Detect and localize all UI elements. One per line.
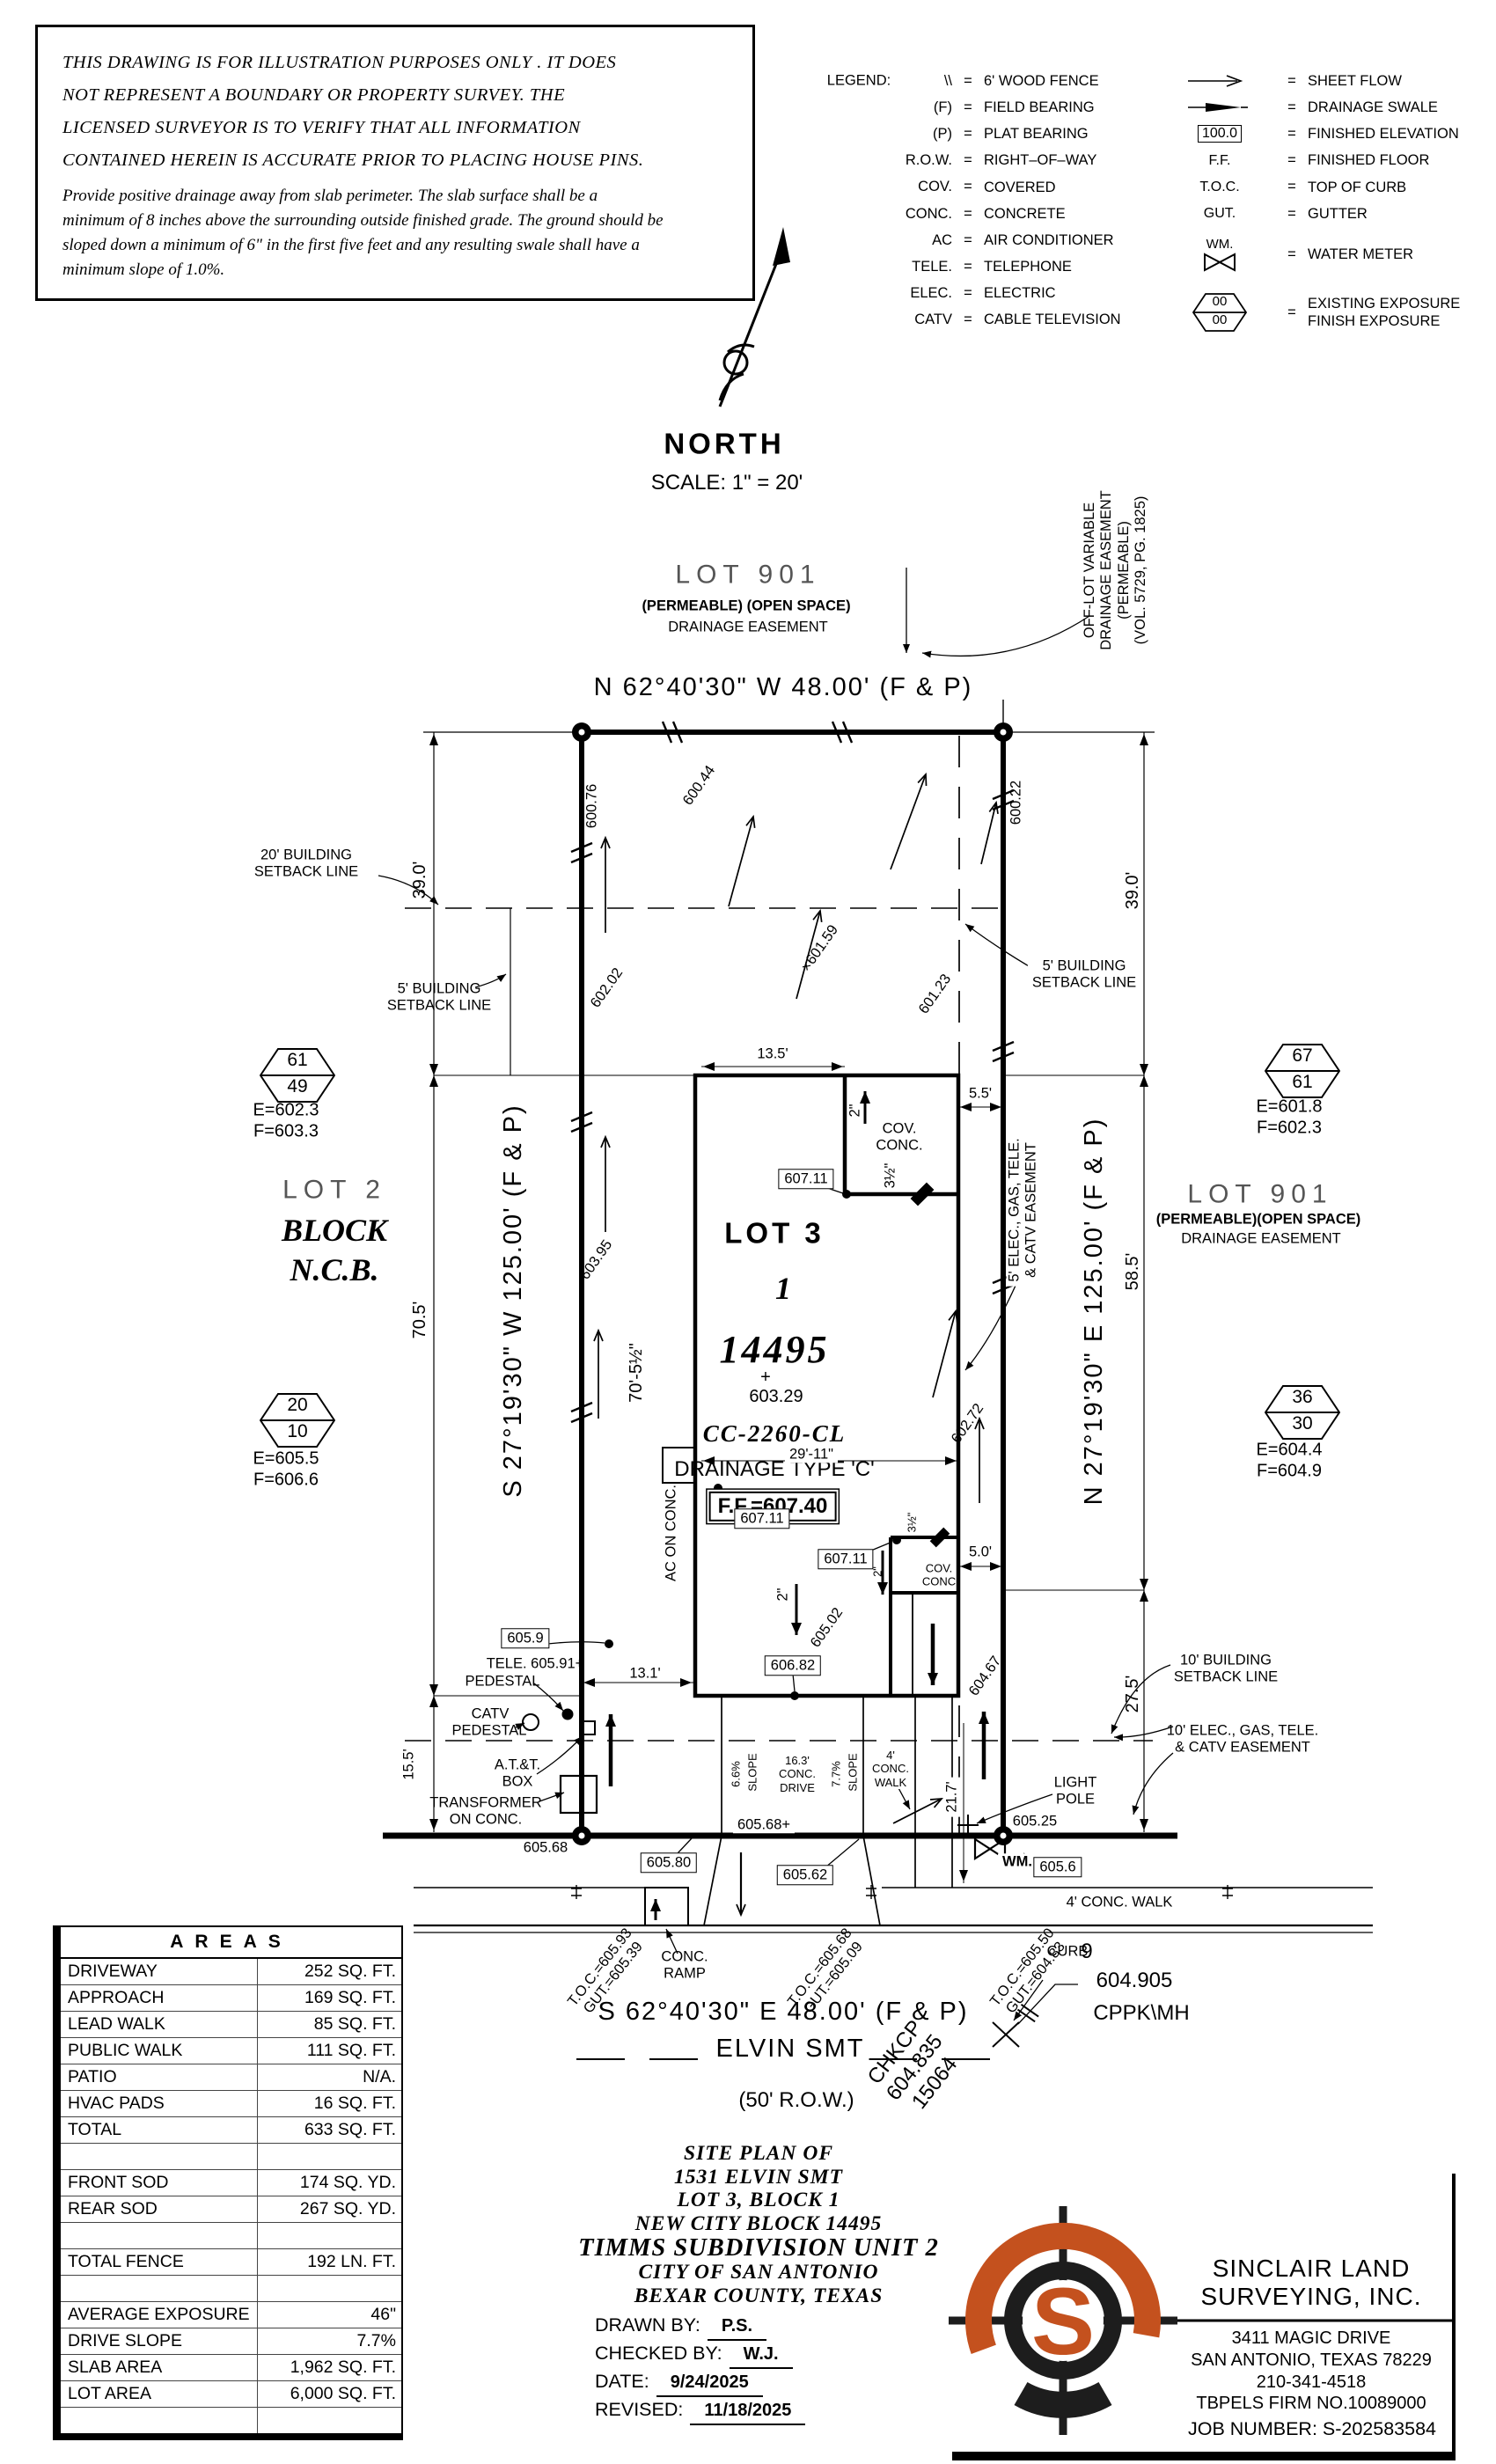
areas-row-value: N/A. — [258, 2064, 401, 2090]
label-13-1: 13.1' — [625, 1665, 664, 1682]
areas-row-value — [258, 2408, 401, 2433]
areas-row: DRIVE SLOPE7.7% — [61, 2328, 401, 2354]
label-ac-on-conc: AC ON CONC. — [663, 1485, 679, 1581]
label-block: BLOCK — [282, 1212, 387, 1249]
legend-label: TELEPHONE — [984, 258, 1072, 276]
legend-item: CATV=CABLE TELEVISION — [887, 307, 1121, 334]
areas-row-value: 633 SQ. FT. — [258, 2117, 401, 2143]
legend-item: (P)=PLAT BEARING — [887, 121, 1121, 147]
areas-row-label: TOTAL FENCE — [61, 2249, 258, 2275]
legend-label: COVERED — [984, 179, 1056, 197]
label-607-11: 607.11 — [734, 1508, 789, 1529]
areas-row-label: AVERAGE EXPOSURE — [61, 2302, 258, 2328]
label-cc-2260-cl: CC-2260-CL — [703, 1420, 847, 1448]
label-5-5: 5.5' — [964, 1085, 996, 1102]
label-lot-901: LOT 901 — [1187, 1178, 1332, 1209]
legend-item: GUT.=GUTTER — [1163, 201, 1460, 227]
areas-row-label: TOTAL — [61, 2117, 258, 2143]
legend-item: CONC.=CONCRETE — [887, 201, 1121, 227]
legend-item: TELE.=TELEPHONE — [887, 253, 1121, 280]
legend-symbol: R.O.W. — [887, 152, 952, 169]
hex-top-value: 61 — [260, 1050, 335, 1071]
tele-pedestal-symbol — [562, 1709, 573, 1720]
label-n-c-b: N.C.B. — [290, 1251, 378, 1288]
label-14495: 14495 — [720, 1327, 830, 1373]
legend-equals: = — [1276, 152, 1308, 169]
label-39-0: 39.0' — [1123, 872, 1144, 910]
legend-item: 100.0=FINISHED ELEVATION — [1163, 121, 1460, 147]
legend-item: \\=6' WOOD FENCE — [887, 68, 1121, 94]
label-s-27-19-30-w-125-00-f-p: S 27°19'30" W 125.00' (F & P) — [498, 1104, 528, 1497]
areas-row-value: 267 SQ. YD. — [258, 2196, 401, 2222]
areas-row-value: 46" — [258, 2302, 401, 2328]
areas-table-title: AREAS — [61, 1927, 401, 1959]
areas-row-value: 1,962 SQ. FT. — [258, 2355, 401, 2380]
spot-dot — [605, 1640, 613, 1648]
label-13-5: 13.5' — [757, 1045, 788, 1062]
label-29-11: 29'-11" — [785, 1446, 838, 1463]
firm-name-line2: SURVEYING, INC. — [1179, 2283, 1443, 2311]
disclaimer-line: Provide positive drainage away from slab… — [62, 184, 728, 209]
legend-equals: = — [952, 259, 984, 275]
sheet-flow-icon — [1186, 74, 1253, 88]
areas-row-label: DRIVEWAY — [61, 1959, 258, 1984]
areas-row-value — [258, 2276, 401, 2301]
label-7-7: 7.7% — [829, 1761, 842, 1787]
areas-row: LEAD WALK85 SQ. FT. — [61, 2011, 401, 2037]
svg-text:S: S — [1031, 2268, 1095, 2374]
areas-row: AVERAGE EXPOSURE46" — [61, 2301, 401, 2328]
label-39-0: 39.0' — [410, 862, 431, 899]
label-58-5: 58.5' — [1123, 1253, 1144, 1291]
legend-item: T.O.C.=TOP OF CURB — [1163, 174, 1460, 201]
legend-label: WATER METER — [1308, 246, 1413, 264]
legend-label: SHEET FLOW — [1308, 72, 1402, 91]
label-605-62: 605.62 — [777, 1865, 833, 1885]
legend-equals: = — [1276, 179, 1308, 195]
legend-label: CABLE TELEVISION — [984, 311, 1121, 329]
legend-symbol: COV. — [887, 179, 952, 195]
label-slope: SLOPE — [745, 1753, 759, 1791]
exposure-hex-marker: 6149 — [260, 1048, 335, 1103]
field-value: 9/24/2025 — [656, 2370, 763, 2397]
areas-row: PUBLIC WALK111 SQ. FT. — [61, 2037, 401, 2064]
label-drainage-easement: DRAINAGE EASEMENT — [668, 619, 828, 635]
areas-row: PATION/A. — [61, 2064, 401, 2090]
legend-symbol: AC — [887, 232, 952, 249]
areas-row: HVAC PADS16 SQ. FT. — [61, 2090, 401, 2116]
disclaimer-line: NOT REPRESENT A BOUNDARY OR PROPERTY SUR… — [62, 79, 728, 112]
label-21-7: 21.7' — [943, 1777, 960, 1816]
legend-label: EXISTING EXPOSURE FINISH EXPOSURE — [1308, 295, 1460, 331]
label-on-conc: ON CONC. — [450, 1811, 523, 1828]
legend-label: AIR CONDITIONER — [984, 231, 1114, 250]
areas-row: DRIVEWAY252 SQ. FT. — [61, 1959, 401, 1984]
legend-item: WM.=WATER METER — [1163, 227, 1460, 282]
disclaimer-line: CONTAINED HEREIN IS ACCURATE PRIOR TO PL… — [62, 144, 728, 177]
label-e-601-8-f-602-3: E=601.8 F=602.3 — [1256, 1096, 1322, 1138]
legend-symbol: WM. — [1163, 237, 1276, 273]
label-2: 2" — [847, 1104, 863, 1117]
legend-label: FIELD BEARING — [984, 99, 1095, 117]
areas-row-label: DRIVE SLOPE — [61, 2328, 258, 2354]
areas-row-label — [61, 2408, 258, 2433]
areas-row-label — [61, 2144, 258, 2169]
firm-name-line1: SINCLAIR LAND — [1179, 2255, 1443, 2283]
legend-item: COV.=COVERED — [887, 174, 1121, 201]
legend-symbol: 100.0 — [1163, 125, 1276, 143]
sinclair-logo-icon: S — [949, 2204, 1177, 2437]
label-600-76: 600.76 — [583, 784, 600, 828]
transformer-symbol — [561, 1776, 597, 1813]
areas-row-value: 192 LN. FT. — [258, 2249, 401, 2275]
areas-row-label — [61, 2276, 258, 2301]
label-e-605-5-f-606-6: E=605.5 F=606.6 — [253, 1448, 319, 1490]
legend-label: FINISHED FLOOR — [1308, 151, 1429, 170]
label-3: 3½" — [905, 1513, 918, 1533]
legend-symbol: \\ — [887, 73, 952, 90]
label-9: 9 — [1081, 1940, 1092, 1964]
label-27-5: 27.5' — [1123, 1676, 1144, 1713]
label-transformer: TRANSFORMER — [429, 1794, 541, 1811]
areas-row-label: LOT AREA — [61, 2381, 258, 2407]
label-catv: CATV — [472, 1705, 510, 1722]
firm-address-line2: SAN ANTONIO, TEXAS 78229 — [1179, 2350, 1443, 2371]
legend-label: TOP OF CURB — [1308, 179, 1406, 197]
finished-elevation-box: 100.0 — [1198, 125, 1242, 143]
areas-row-label: REAR SOD — [61, 2196, 258, 2222]
label-1: 1 — [775, 1270, 791, 1307]
label-tele-605-91: TELE. 605.91+ — [487, 1655, 584, 1672]
label-5-building-setback-line: 5' BUILDING SETBACK LINE — [1028, 958, 1140, 993]
areas-row: FRONT SOD174 SQ. YD. — [61, 2169, 401, 2196]
label-606-82: 606.82 — [765, 1655, 821, 1676]
legend-symbol: 0000 — [1163, 293, 1276, 332]
label-north: NORTH — [664, 428, 784, 462]
label-drainage-type-c: DRAINAGE TYPE 'C' — [674, 1457, 874, 1482]
title-block-field: REVISED:11/18/2025 — [595, 2397, 805, 2425]
field-label: REVISED: — [595, 2399, 683, 2420]
title-block-field: DATE:9/24/2025 — [595, 2369, 805, 2397]
label-cppk-mh: CPPK\MH — [1093, 2001, 1189, 2026]
label-50-r-o-w: (50' R.O.W.) — [738, 2088, 854, 2113]
areas-row-label: LEAD WALK — [61, 2012, 258, 2037]
label-permeable-open-space: (PERMEABLE)(OPEN SPACE) — [1156, 1211, 1361, 1228]
legend-equals: = — [1276, 304, 1308, 321]
areas-table: AREAS DRIVEWAY252 SQ. FT.APPROACH169 SQ.… — [53, 1925, 403, 2440]
legend-item: =SHEET FLOW — [1163, 68, 1460, 94]
label-n-27-19-30-e-125-00-f-p: N 27°19'30" E 125.00' (F & P) — [1079, 1118, 1109, 1506]
legend-item: (F)=FIELD BEARING — [887, 94, 1121, 121]
label-n-62-40-30-w-48-00-f-p: N 62°40'30" W 48.00' (F & P) — [594, 672, 973, 702]
legend-equals: = — [1276, 73, 1308, 90]
legend-symbol: T.O.C. — [1163, 180, 1276, 195]
legend-equals: = — [952, 73, 984, 90]
areas-row-label: SLAB AREA — [61, 2355, 258, 2380]
legend-symbol: CONC. — [887, 206, 952, 223]
label-603-29: 603.29 — [749, 1387, 803, 1408]
spot-dot — [843, 1191, 851, 1199]
disclaimer-line: minimum of 8 inches above the surroundin… — [62, 209, 728, 233]
label-e-602-3-f-603-3: E=602.3 F=603.3 — [253, 1100, 319, 1141]
legend-equals: = — [952, 152, 984, 169]
label-607-11: 607.11 — [818, 1549, 873, 1569]
areas-row-label — [61, 2223, 258, 2248]
fence-marks — [571, 722, 1014, 1422]
legend-symbol: ELEC. — [887, 285, 952, 302]
legend-equals: = — [952, 206, 984, 223]
field-value: P.S. — [708, 2314, 766, 2341]
label-5-0: 5.0' — [964, 1544, 996, 1560]
disclaimer-line: sloped down a minimum of 6" in the first… — [62, 233, 728, 258]
areas-row — [61, 2143, 401, 2169]
label-off-lot-variable-drainage-easement-permeab: OFF-LOT VARIABLE DRAINAGE EASEMENT (PERM… — [1082, 490, 1150, 650]
hex-top-value: 20 — [260, 1395, 335, 1416]
legend-label: GUTTER — [1308, 205, 1368, 224]
title-block: SITE PLAN OF1531 ELVIN SMTLOT 3, BLOCK 1… — [495, 2142, 1023, 2307]
legend-equals: = — [1276, 99, 1308, 116]
label-e-604-4-f-604-9: E=604.4 F=604.9 — [1256, 1440, 1322, 1481]
firm-address-line1: 3411 MAGIC DRIVE — [1179, 2328, 1443, 2349]
areas-row: TOTAL633 SQ. FT. — [61, 2116, 401, 2143]
areas-row-value: 169 SQ. FT. — [258, 1985, 401, 2011]
legend-label: FINISHED ELEVATION — [1308, 125, 1459, 143]
legend-symbol: TELE. — [887, 259, 952, 275]
legend-label: PLAT BEARING — [984, 125, 1089, 143]
legend-equals: = — [1276, 206, 1308, 223]
areas-row — [61, 2275, 401, 2301]
label-10-building-setback-line: 10' BUILDING SETBACK LINE — [1174, 1653, 1278, 1687]
label-5-elec-gas-tele-catv-easement: 5' ELEC., GAS, TELE. & CATV EASEMENT — [1007, 1133, 1041, 1286]
areas-row: REAR SOD267 SQ. YD. — [61, 2196, 401, 2222]
label-2: 2" — [870, 1566, 884, 1577]
legend-symbol: CATV — [887, 312, 952, 328]
areas-row-label: FRONT SOD — [61, 2170, 258, 2196]
areas-row-label: APPROACH — [61, 1985, 258, 2011]
exposure-hex-marker: 2010 — [260, 1393, 335, 1448]
title-block-line: NEW CITY BLOCK 14495 — [495, 2212, 1023, 2236]
label-6-6: 6.6% — [729, 1761, 742, 1787]
firm-job-number: JOB NUMBER: S-202583584 — [1175, 2418, 1449, 2440]
disclaimer-line: LICENSED SURVEYOR IS TO VERIFY THAT ALL … — [62, 112, 728, 144]
areas-row-value: 252 SQ. FT. — [258, 1959, 401, 1984]
label-605-25: 605.25 — [1013, 1813, 1057, 1830]
areas-row-label: PATIO — [61, 2064, 258, 2090]
areas-row: LOT AREA6,000 SQ. FT. — [61, 2380, 401, 2407]
label-2: 2" — [774, 1588, 791, 1601]
areas-row-value: 7.7% — [258, 2328, 401, 2354]
legend-equals: = — [952, 232, 984, 249]
label-15-5: 15.5' — [400, 1744, 417, 1784]
areas-row-value: 16 SQ. FT. — [258, 2091, 401, 2116]
legend-symbol: GUT. — [1163, 206, 1276, 222]
areas-row: SLAB AREA1,962 SQ. FT. — [61, 2354, 401, 2380]
hex-top-value: 67 — [1265, 1045, 1340, 1067]
label-pedestal: PEDESTAL — [466, 1673, 540, 1690]
label-cov-conc: COV. CONC. — [876, 1121, 922, 1155]
areas-row-value: 85 SQ. FT. — [258, 2012, 401, 2037]
legend-item: F.F.=FINISHED FLOOR — [1163, 148, 1460, 174]
legend-label: ELECTRIC — [984, 284, 1056, 303]
label-slope: SLOPE — [846, 1753, 859, 1791]
disclaimer-line: THIS DRAWING IS FOR ILLUSTRATION PURPOSE… — [62, 47, 728, 79]
legend-item: 0000=EXISTING EXPOSURE FINISH EXPOSURE — [1163, 282, 1460, 343]
legend-equals: = — [952, 312, 984, 328]
label-605-68: 605.68 — [524, 1839, 568, 1856]
label-pedestal: PEDESTAL — [452, 1722, 527, 1739]
title-block-field: DRAWN BY:P.S. — [595, 2313, 805, 2341]
label-cov-conc: COV. CONC — [922, 1562, 956, 1589]
disclaimer-caps: THIS DRAWING IS FOR ILLUSTRATION PURPOSE… — [62, 47, 728, 177]
hex-top-value: 36 — [1265, 1387, 1340, 1408]
disclaimer-line: minimum slope of 1.0%. — [62, 258, 728, 282]
dimension-arrowheads — [429, 734, 1148, 1881]
legend-equals: = — [952, 99, 984, 116]
field-label: CHECKED BY: — [595, 2343, 722, 2364]
label-3: 3½" — [882, 1163, 898, 1189]
areas-row — [61, 2407, 401, 2433]
label-4-conc-walk: 4' CONC. WALK — [1062, 1894, 1177, 1910]
areas-row — [61, 2222, 401, 2248]
legend-label: CONCRETE — [984, 205, 1066, 224]
legend-equals: = — [952, 179, 984, 195]
areas-row-value: 111 SQ. FT. — [258, 2038, 401, 2064]
hex-bottom-value: 49 — [260, 1076, 335, 1097]
areas-row-value: 174 SQ. YD. — [258, 2170, 401, 2196]
exposure-hex-marker: 3630 — [1265, 1385, 1340, 1440]
utility-symbols — [523, 1191, 1038, 2048]
legend-item: ELEC.=ELECTRIC — [887, 281, 1121, 307]
legend-equals: = — [952, 126, 984, 143]
label-: + — [760, 1368, 771, 1389]
legend-symbol: (F) — [887, 99, 952, 116]
field-value: 11/18/2025 — [690, 2398, 805, 2425]
label-605-9: 605.9 — [501, 1628, 549, 1648]
legend-equals: = — [1276, 246, 1308, 263]
legend-label: DRAINAGE SWALE — [1308, 99, 1438, 117]
label-elvin-smt: ELVIN SMT — [712, 2034, 869, 2064]
label-20-building-setback-line: 20' BUILDING SETBACK LINE — [254, 847, 358, 882]
field-label: DRAWN BY: — [595, 2314, 700, 2336]
areas-row-label: HVAC PADS — [61, 2091, 258, 2116]
label-permeable-open-space: (PERMEABLE) (OPEN SPACE) — [642, 598, 850, 614]
conc-ramp-shape — [645, 1888, 688, 1925]
legend-label: RIGHT–OF–WAY — [984, 151, 1096, 170]
label-604-905: 604.905 — [1096, 1969, 1173, 1993]
hex-bottom-value: 30 — [1265, 1413, 1340, 1434]
legend-symbol: F.F. — [1163, 153, 1276, 169]
legend-symbol: (P) — [887, 126, 952, 143]
hex-bottom-value: 10 — [260, 1421, 335, 1442]
title-block-field: CHECKED BY:W.J. — [595, 2341, 805, 2369]
hex-bottom-value: 61 — [1265, 1072, 1340, 1093]
title-block-fields: DRAWN BY:P.S.CHECKED BY:W.J.DATE:9/24/20… — [595, 2313, 805, 2425]
areas-row: APPROACH169 SQ. FT. — [61, 1984, 401, 2011]
legend-right-column: =SHEET FLOW=DRAINAGE SWALE100.0=FINISHED… — [1163, 68, 1460, 343]
label-607-11: 607.11 — [778, 1169, 833, 1189]
label-drainage-easement: DRAINAGE EASEMENT — [1181, 1230, 1341, 1247]
exposure-hex-marker: 6761 — [1265, 1044, 1340, 1098]
spot-dot — [893, 1536, 901, 1544]
label-conc-ramp: CONC. RAMP — [661, 1949, 708, 1984]
title-block-line: LOT 3, BLOCK 1 — [495, 2189, 1023, 2212]
legend-symbol — [1163, 74, 1276, 88]
areas-row-value — [258, 2144, 401, 2169]
label-lot-901: LOT 901 — [675, 559, 820, 590]
label-4-conc-walk: 4' CONC. WALK — [868, 1749, 913, 1789]
legend-label: 6' WOOD FENCE — [984, 72, 1099, 91]
label-lot-3: LOT 3 — [724, 1217, 825, 1251]
field-value: W.J. — [730, 2342, 793, 2369]
areas-row-label: PUBLIC WALK — [61, 2038, 258, 2064]
legend-left-column: \\=6' WOOD FENCE(F)=FIELD BEARING(P)=PLA… — [887, 68, 1121, 334]
label-lot-2: LOT 2 — [282, 1174, 386, 1205]
title-block-line: 1531 ELVIN SMT — [495, 2166, 1023, 2189]
label-wm: WM. — [998, 1853, 1037, 1870]
label-5-building-setback-line: 5' BUILDING SETBACK LINE — [387, 981, 491, 1016]
legend-equals: = — [952, 285, 984, 302]
label-70-5: 70.5' — [410, 1297, 431, 1344]
legend-item: AC=AIR CONDITIONER — [887, 227, 1121, 253]
title-block-line: CITY OF SAN ANTONIO — [495, 2261, 1023, 2284]
label-a-t-t: A.T.&T. — [495, 1756, 540, 1773]
drainage-swale-icon — [1186, 100, 1253, 114]
label-600-22: 600.22 — [1008, 781, 1024, 825]
areas-row-value: 6,000 SQ. FT. — [258, 2381, 401, 2407]
firm-license: TBPELS FIRM NO.10089000 — [1179, 2394, 1443, 2414]
legend-item: =DRAINAGE SWALE — [1163, 94, 1460, 121]
title-block-line: SITE PLAN OF — [495, 2142, 1023, 2166]
areas-row-value — [258, 2223, 401, 2248]
firm-phone: 210-341-4518 — [1179, 2372, 1443, 2393]
label-box: BOX — [502, 1773, 533, 1790]
title-block-line: TIMMS SUBDIVISION UNIT 2 — [495, 2235, 1023, 2261]
label-16-3-conc-drive: 16.3' CONC. DRIVE — [779, 1754, 816, 1794]
spot-dot — [791, 1692, 799, 1700]
label-10-elec-gas-tele-catv-easement: 10' ELEC., GAS, TELE. & CATV EASEMENT — [1167, 1723, 1319, 1757]
label-605-6: 605.6 — [1033, 1857, 1082, 1877]
label-scale-1-20: SCALE: 1" = 20' — [651, 471, 803, 495]
water-meter-icon — [1202, 252, 1237, 273]
label-light-pole: LIGHT POLE — [1054, 1775, 1097, 1809]
legend-item: R.O.W.=RIGHT–OF–WAY — [887, 148, 1121, 174]
legend-equals: = — [1276, 126, 1308, 143]
areas-row: TOTAL FENCE192 LN. FT. — [61, 2248, 401, 2275]
label-70-5: 70'-5½" — [627, 1338, 648, 1407]
site-plan-page: THIS DRAWING IS FOR ILLUSTRATION PURPOSE… — [0, 0, 1496, 2464]
label-605-80: 605.80 — [641, 1852, 697, 1873]
wall-hatch — [911, 1183, 950, 1548]
disclaimer-note: THIS DRAWING IS FOR ILLUSTRATION PURPOSE… — [35, 25, 755, 301]
dimension-lines — [429, 732, 1148, 1883]
title-block-line: BEXAR COUNTY, TEXAS — [495, 2284, 1023, 2308]
field-label: DATE: — [595, 2371, 649, 2392]
light-pole-symbol — [957, 1815, 979, 1836]
legend-symbol — [1163, 100, 1276, 114]
disclaimer-paragraph: Provide positive drainage away from slab… — [62, 184, 728, 282]
label-605-68: 605.68+ — [733, 1816, 795, 1833]
legend-title: LEGEND: — [827, 72, 891, 89]
